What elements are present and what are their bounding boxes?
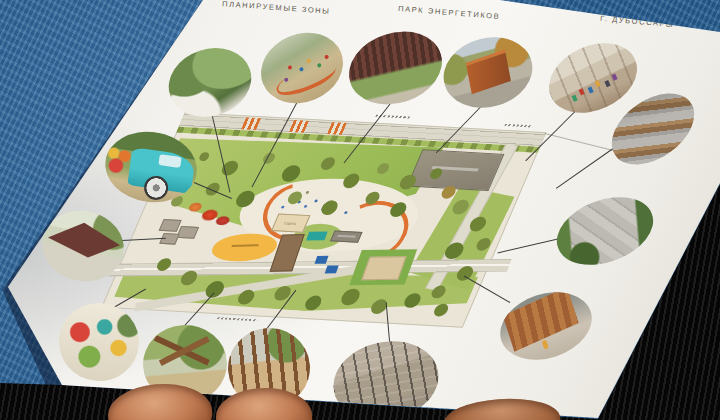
photo-planting-white-wall [160,38,261,128]
photo-dark-red-pergola [340,20,452,116]
planned-zones-label: ПЛАНИРУЕМЫЕ ЗОНЫ [222,0,331,16]
building-label-smudge [432,166,479,172]
child-figure [541,340,549,350]
wood-wall-shape [503,287,579,352]
map-building [407,149,505,191]
people-dots [578,89,584,96]
street-name-smudge [217,317,258,321]
leader-line [498,238,561,253]
playground-label-smudge [231,244,258,247]
photo-wooden-wall-kid [491,281,600,371]
park-title-label: ПАРК ЭНЕРГЕТИКОВ [398,4,501,21]
photo-aerial-slab-path [547,185,662,277]
corten-box-shape [466,49,512,94]
street-name-smudge [504,124,533,128]
orange-bench-shape [273,58,339,101]
people-dots [287,65,292,70]
map-sign-plate [330,231,363,243]
photo-corten-kiosk [436,28,541,118]
leader-line [556,146,616,189]
photo-colorful-playground-drawing [55,299,143,385]
court-infield [361,256,406,280]
map-trampoline-pad [306,232,328,241]
stage-label: СЦЕНА [284,221,297,225]
photo-kids-orange-bench [250,21,353,116]
angular-roof-shape [43,211,124,274]
plate-label-smudge [337,235,356,238]
